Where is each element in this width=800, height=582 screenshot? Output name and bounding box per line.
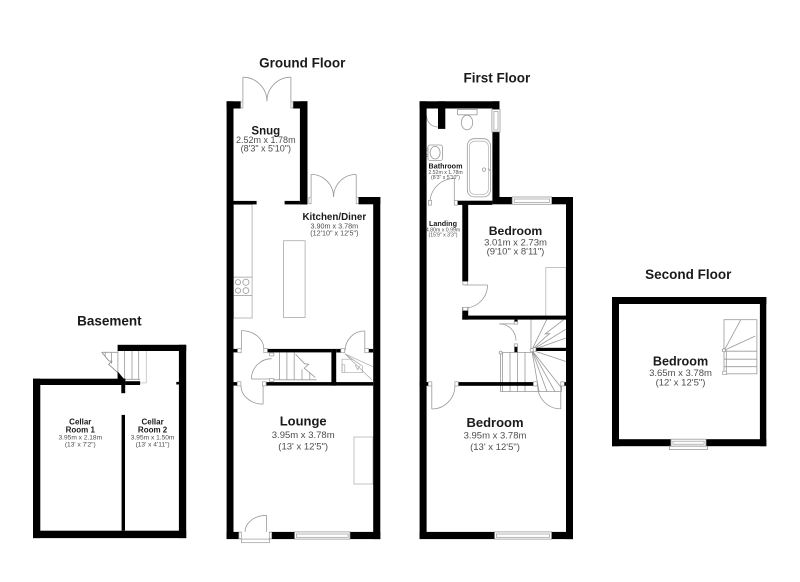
svg-text:(13' x 12'5"): (13' x 12'5") — [278, 441, 328, 452]
svg-text:(8'3" x 5'10"): (8'3" x 5'10") — [241, 144, 291, 154]
svg-text:Ground Floor: Ground Floor — [259, 56, 346, 71]
svg-text:(13' x 12'5"): (13' x 12'5") — [470, 442, 520, 453]
svg-text:Basement: Basement — [77, 314, 142, 329]
svg-text:3.95m x 3.78m: 3.95m x 3.78m — [272, 430, 335, 441]
svg-text:Room 2: Room 2 — [138, 426, 168, 435]
svg-text:(8'3" x 5'10"): (8'3" x 5'10") — [431, 175, 460, 181]
svg-text:Bedroom: Bedroom — [489, 224, 543, 238]
svg-text:(12'10" x 12'5"): (12'10" x 12'5") — [310, 229, 358, 238]
svg-text:Second Floor: Second Floor — [645, 267, 732, 282]
svg-text:(13' x 7'2"): (13' x 7'2") — [65, 441, 96, 448]
svg-text:Bedroom: Bedroom — [653, 355, 708, 369]
svg-text:First Floor: First Floor — [464, 71, 531, 86]
svg-text:(13' x 4'11"): (13' x 4'11") — [136, 441, 170, 448]
svg-text:Lounge: Lounge — [280, 414, 327, 429]
svg-text:(12' x 12'5"): (12' x 12'5") — [656, 377, 706, 388]
svg-text:3.95m x 3.78m: 3.95m x 3.78m — [464, 430, 527, 441]
svg-text:(9'10" x 8'11"): (9'10" x 8'11") — [487, 247, 545, 258]
svg-text:Bedroom: Bedroom — [466, 415, 523, 430]
svg-text:Room 1: Room 1 — [66, 426, 96, 435]
svg-text:(15'9" x 3'3"): (15'9" x 3'3") — [428, 232, 457, 238]
